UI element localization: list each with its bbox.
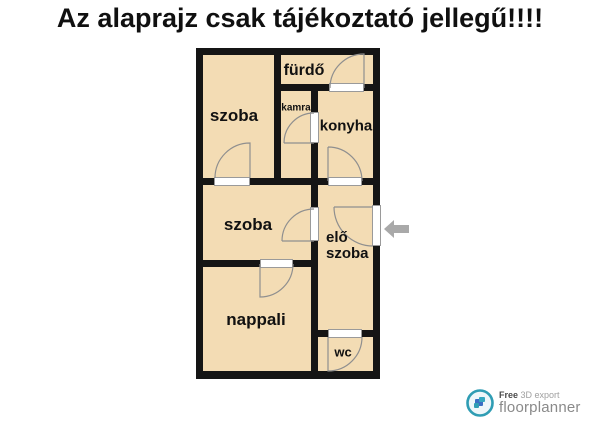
wall-furdo-bottom-right [364,84,373,91]
door-opening-kamra [310,112,319,143]
room-label-szoba-top: szoba [210,106,258,126]
floorplanner-logo-icon [466,389,494,417]
room-label-konyha: konyha [320,118,373,135]
entrance-arrow-icon [384,220,409,238]
wall-szoba-nappali-2 [293,260,311,267]
wall-eloszoba-left-top [311,185,318,207]
wall-mid-horizontal-1 [203,178,214,185]
room-label-eloszoba-line2: szoba [326,246,369,262]
wall-outer-right-lower [373,246,380,379]
logo-brand-label: floorplanner [499,400,581,415]
wall-wc-top-1 [311,330,328,337]
wall-kamra-konyha-top [311,91,318,112]
wall-outer-right-upper [373,48,380,205]
wall-eloszoba-left-bottom [311,241,318,371]
floorplanner-logo: Free 3D export floorplanner [466,389,581,417]
room-label-nappali: nappali [226,310,286,330]
wall-outer-left [196,48,203,379]
door-opening-szoba-middle [310,207,319,241]
room-label-furdo: fürdő [284,62,325,80]
room-label-kamra: kamra [281,103,310,114]
room-label-szoba-middle: szoba [224,215,272,235]
wall-outer-bottom [196,371,380,379]
wall-mid-horizontal-2 [250,178,328,185]
entrance-opening [372,205,381,246]
floorplan-page: Az alaprajz csak tájékoztató jellegű!!!! [0,0,600,424]
door-opening-szoba-top [214,177,250,186]
room-label-eloszoba-line1: elő [326,230,369,246]
wall-furdo-bottom-left [281,84,329,91]
wall-mid-horizontal-3 [362,178,373,185]
wall-wc-top-2 [362,330,373,337]
wall-szoba-nappali-1 [203,260,260,267]
disclaimer-title: Az alaprajz csak tájékoztató jellegű!!!! [0,3,600,34]
wall-szoba-kamra [274,55,281,185]
floorplanner-logo-text: Free 3D export floorplanner [499,391,581,415]
room-label-wc: wc [334,345,351,360]
room-label-eloszoba: elő szoba [326,230,369,262]
door-opening-furdo [329,83,364,92]
door-opening-nappali [260,259,293,268]
door-opening-wc [328,329,362,338]
door-opening-konyha [328,177,362,186]
wall-outer-top [196,48,380,55]
